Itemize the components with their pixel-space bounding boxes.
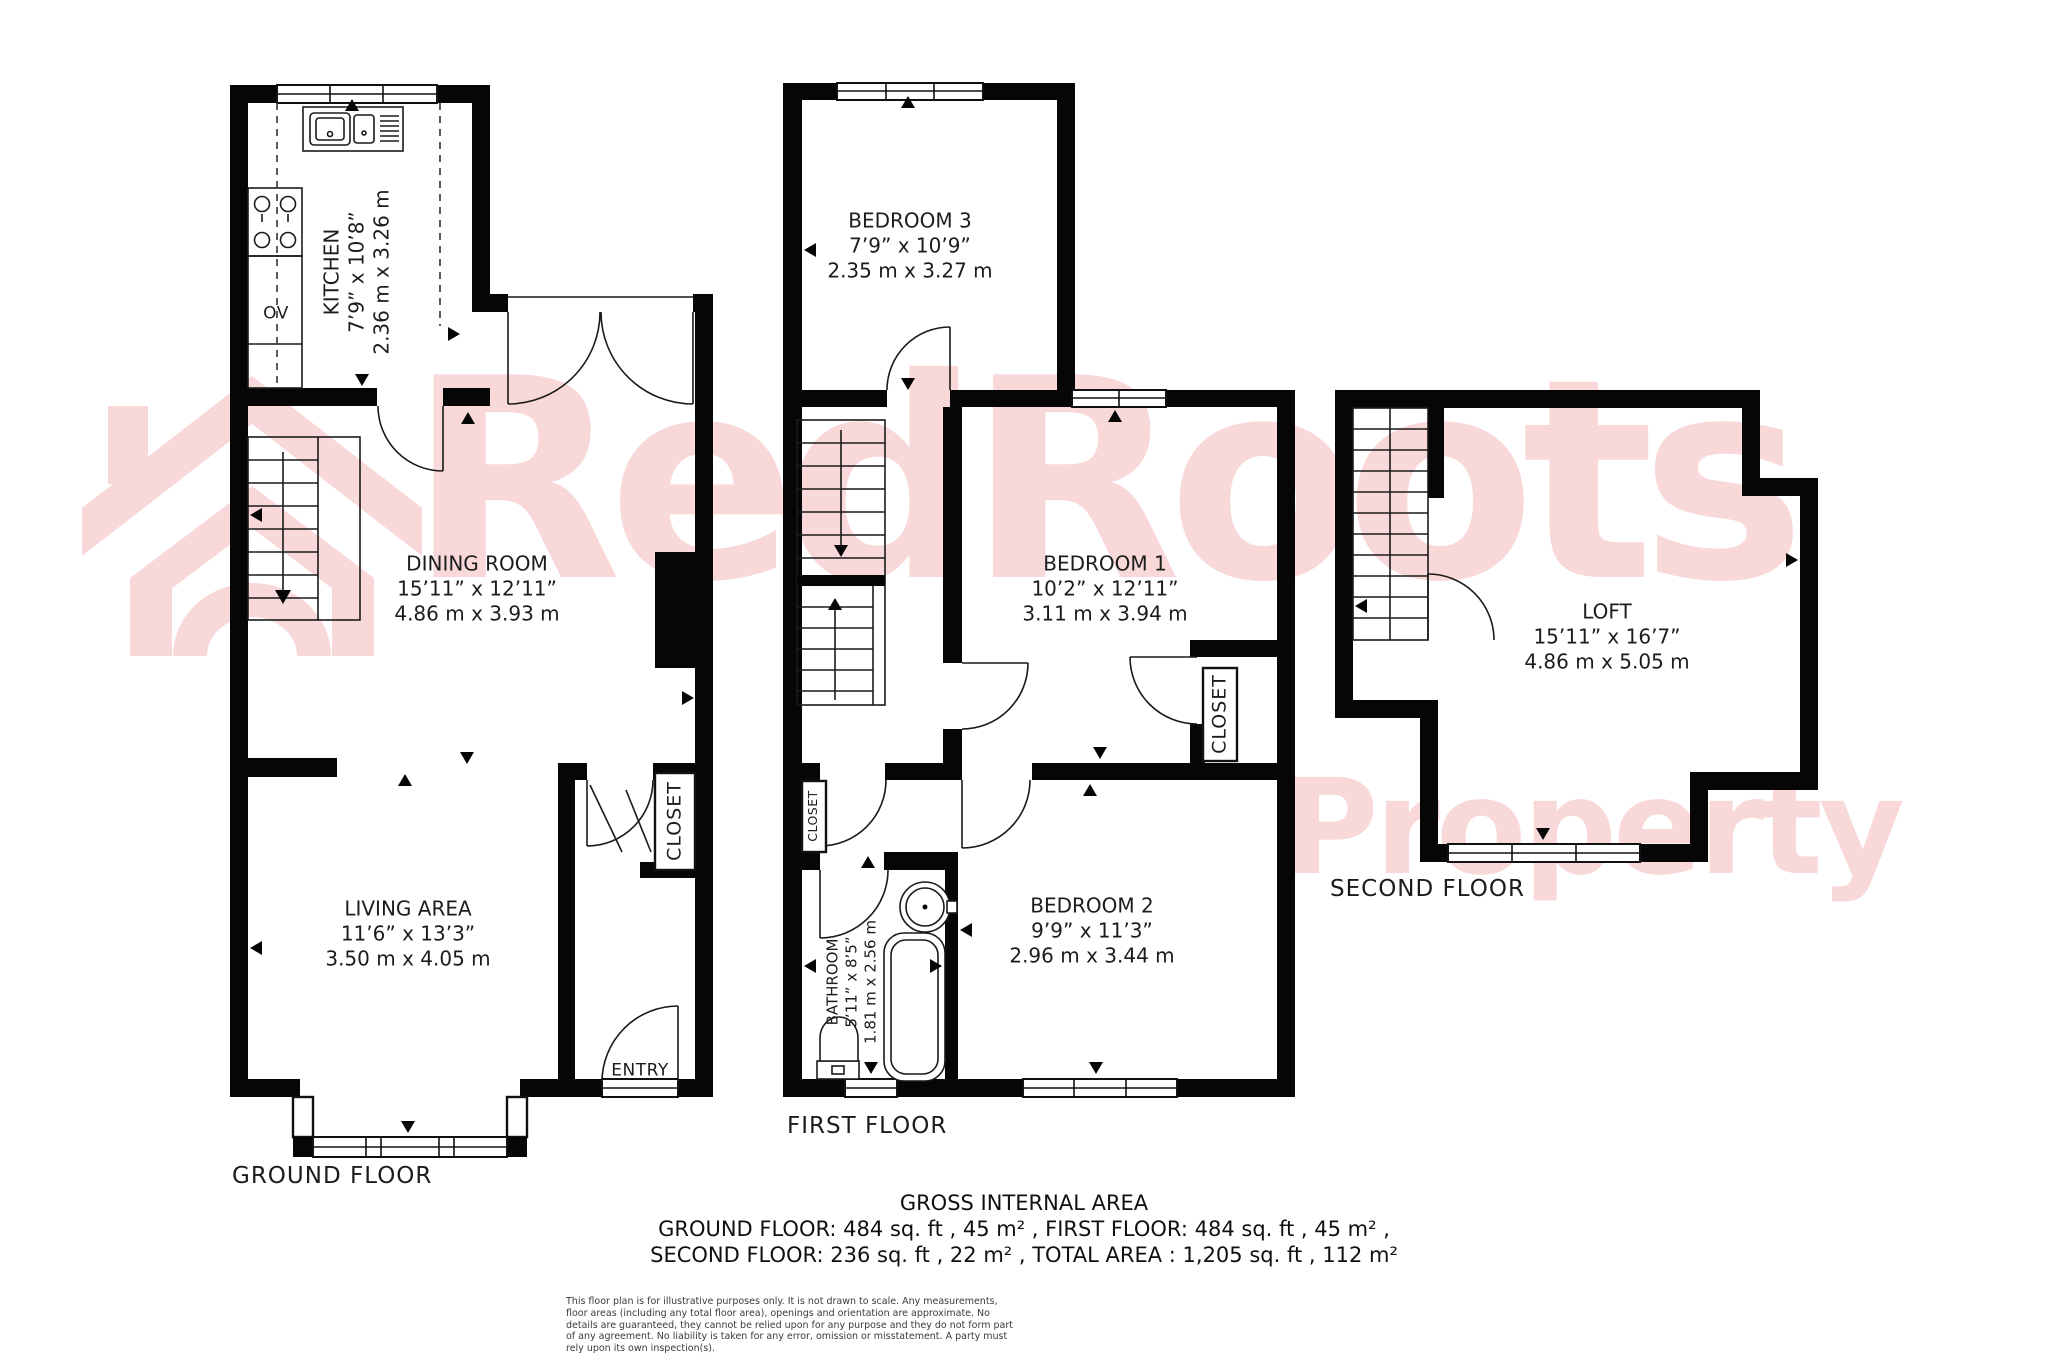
room-size-imperial: 15’11” x 12’11”	[394, 577, 559, 602]
summary-line2: SECOND FLOOR: 236 sq. ft , 22 m² , TOTAL…	[0, 1242, 2048, 1268]
room-size-metric: 2.96 m x 3.44 m	[1009, 944, 1174, 969]
closet-text: CLOSET	[663, 781, 688, 861]
first-floor-title: FIRST FLOOR	[787, 1113, 947, 1139]
room-name: DINING ROOM	[394, 552, 559, 577]
landing-closet-door	[820, 780, 886, 846]
room-size-metric: 4.86 m x 3.93 m	[394, 602, 559, 627]
bathroom-bathtub	[884, 933, 945, 1081]
room-size-metric: 2.36 m x 3.26 m	[370, 189, 395, 354]
room-label-dining: DINING ROOM 15’11” x 12’11” 4.86 m x 3.9…	[394, 552, 559, 627]
room-label-bathroom: BATHROOM 5’11” x 8’5” 1.81 m x 2.56 m	[824, 920, 881, 1044]
room-size-imperial: 5’11” x 8’5”	[843, 920, 862, 1044]
kitchen-door	[378, 406, 443, 471]
floorplan-drawing	[0, 0, 2048, 1365]
bedroom3-window	[837, 83, 983, 100]
loft-window	[1448, 844, 1640, 862]
bedroom1-door	[962, 663, 1028, 729]
summary-title: GROSS INTERNAL AREA	[0, 1190, 2048, 1216]
bedroom2-door	[962, 780, 1030, 848]
room-size-imperial: 9’9” x 11’3”	[1009, 919, 1174, 944]
kitchen-window	[277, 85, 437, 103]
room-size-metric: 3.11 m x 3.94 m	[1022, 602, 1187, 627]
kitchen-stove	[248, 188, 302, 256]
disclaimer-text: This floor plan is for illustrative purp…	[566, 1296, 1018, 1355]
room-label-bedroom1-closet: CLOSET	[1208, 674, 1233, 754]
room-label-living: LIVING AREA 11’6” x 13’3” 3.50 m x 4.05 …	[325, 897, 490, 972]
room-label-ground-closet: CLOSET	[663, 781, 688, 861]
room-name: BEDROOM 1	[1022, 552, 1187, 577]
closet-text: CLOSET	[806, 790, 820, 842]
loft-door	[1428, 574, 1494, 640]
room-label-entry: ENTRY	[611, 1059, 668, 1084]
closet-text: CLOSET	[1208, 674, 1233, 754]
room-label-kitchen: KITCHEN 7’9” x 10’8” 2.36 m x 3.26 m	[320, 189, 395, 354]
room-size-imperial: 15’11” x 16’7”	[1524, 625, 1689, 650]
room-size-metric: 4.86 m x 5.05 m	[1524, 650, 1689, 675]
bedroom1-closet-door	[1130, 657, 1197, 724]
room-name: LIVING AREA	[325, 897, 490, 922]
ground-floor-title: GROUND FLOOR	[232, 1163, 432, 1189]
bedroom2-window	[1023, 1079, 1177, 1097]
bedroom3-door	[887, 327, 950, 390]
room-label-bedroom2: BEDROOM 2 9’9” x 11’3” 2.96 m x 3.44 m	[1009, 894, 1174, 969]
oven-text: OV	[263, 302, 289, 327]
dining-staircase	[248, 437, 360, 620]
room-size-imperial: 10’2” x 12’11”	[1022, 577, 1187, 602]
room-label-bedroom1: BEDROOM 1 10’2” x 12’11” 3.11 m x 3.94 m	[1022, 552, 1187, 627]
room-size-imperial: 7’9” x 10’8”	[345, 189, 370, 354]
room-name: KITCHEN	[320, 189, 345, 354]
oven-label: OV	[263, 302, 289, 327]
kitchen-sink	[303, 107, 403, 151]
bathroom-window	[845, 1079, 897, 1097]
second-floor-title: SECOND FLOOR	[1330, 876, 1525, 902]
room-size-metric: 1.81 m x 2.56 m	[862, 920, 881, 1044]
room-label-bedroom3: BEDROOM 3 7’9” x 10’9” 2.35 m x 3.27 m	[827, 209, 992, 284]
room-name: BEDROOM 3	[827, 209, 992, 234]
bedroom1-window	[1072, 390, 1166, 407]
hallway-door	[587, 780, 653, 846]
room-label-hall-closet: CLOSET	[806, 790, 820, 842]
entry-text: ENTRY	[611, 1059, 668, 1084]
room-size-metric: 3.50 m x 4.05 m	[325, 947, 490, 972]
room-name: BATHROOM	[824, 920, 843, 1044]
room-size-metric: 2.35 m x 3.27 m	[827, 259, 992, 284]
summary-line1: GROUND FLOOR: 484 sq. ft , 45 m² , FIRST…	[0, 1216, 2048, 1242]
room-label-loft: LOFT 15’11” x 16’7” 4.86 m x 5.05 m	[1524, 600, 1689, 675]
room-name: LOFT	[1524, 600, 1689, 625]
gross-internal-area-summary: GROSS INTERNAL AREA GROUND FLOOR: 484 sq…	[0, 1190, 2048, 1268]
room-size-imperial: 7’9” x 10’9”	[827, 234, 992, 259]
room-size-imperial: 11’6” x 13’3”	[325, 922, 490, 947]
floorplan-page: RedRoots Property	[0, 0, 2048, 1365]
room-name: BEDROOM 2	[1009, 894, 1174, 919]
first-floor-staircase	[797, 420, 885, 705]
french-doors	[508, 297, 693, 404]
